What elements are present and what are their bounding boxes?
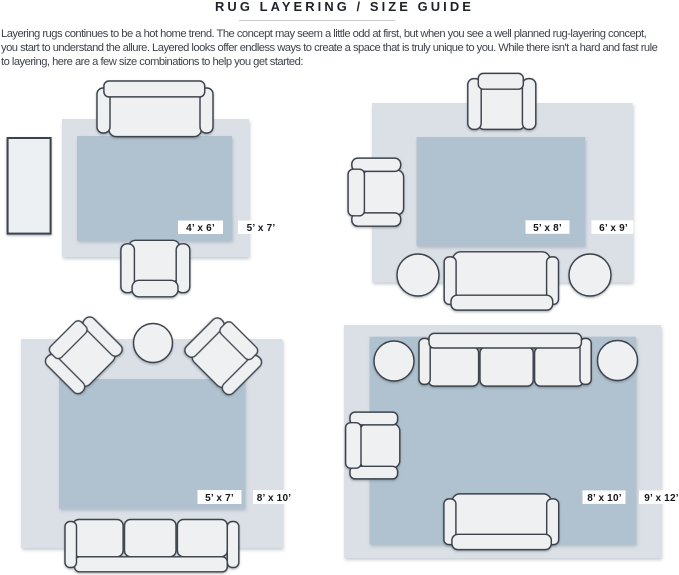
svg-text:4’ x 6’: 4’ x 6’ xyxy=(186,223,215,234)
svg-text:8’ x 10’: 8’ x 10’ xyxy=(257,493,291,504)
svg-text:9’ x 12’: 9’ x 12’ xyxy=(644,493,678,504)
svg-text:5’ x 8’: 5’ x 8’ xyxy=(533,223,562,234)
svg-text:5’ x 7’: 5’ x 7’ xyxy=(247,223,276,234)
svg-text:5’ x 7’: 5’ x 7’ xyxy=(205,493,234,504)
svg-text:8’ x 10’: 8’ x 10’ xyxy=(587,493,621,504)
svg-text:6’ x 9’: 6’ x 9’ xyxy=(599,223,628,234)
